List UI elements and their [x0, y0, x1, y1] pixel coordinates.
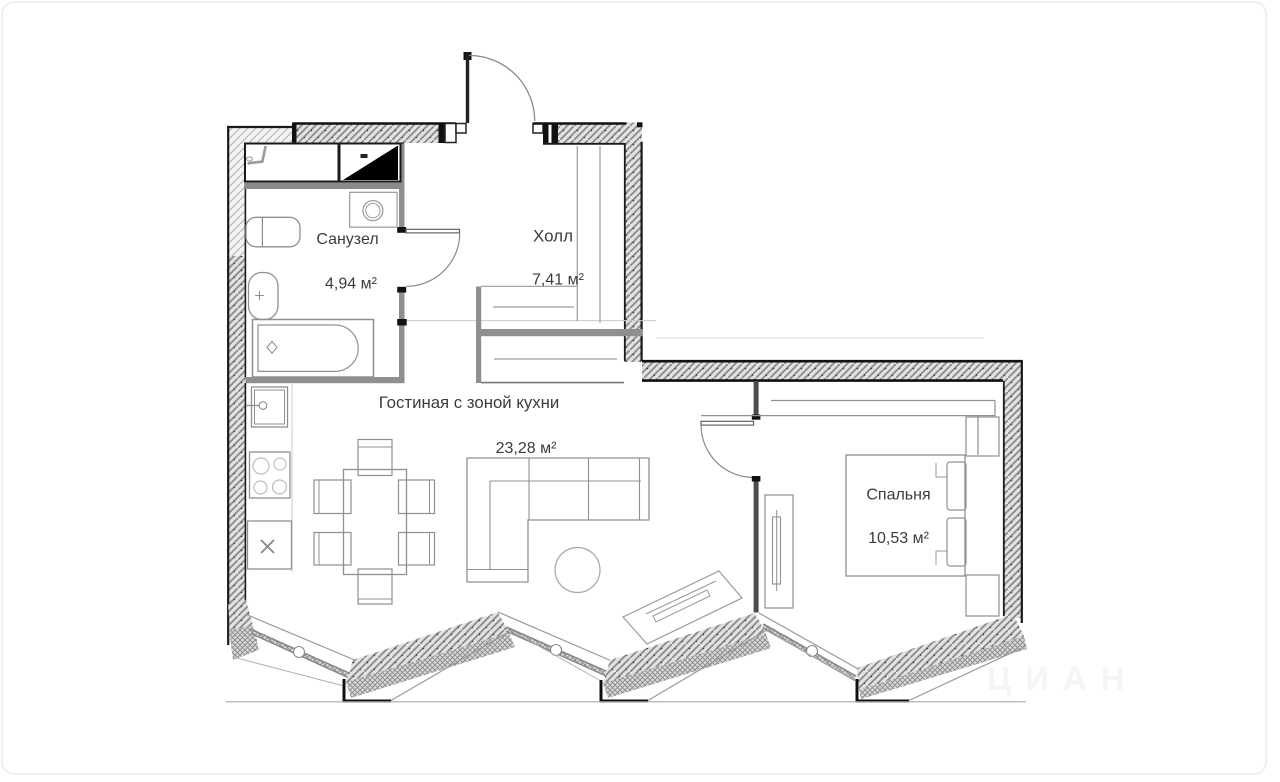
svg-text:Санузел: Санузел: [316, 231, 378, 248]
svg-text:23,28 м²: 23,28 м²: [496, 440, 557, 457]
svg-text:ЦИАН: ЦИАН: [987, 660, 1139, 697]
svg-text:10,53 м²: 10,53 м²: [868, 530, 929, 547]
svg-text:4,94 м²: 4,94 м²: [325, 276, 378, 293]
svg-text:Спальня: Спальня: [866, 487, 930, 504]
svg-text:Холл: Холл: [533, 227, 573, 246]
svg-text:7,41 м²: 7,41 м²: [532, 272, 585, 289]
svg-text:Гостиная с зоной кухни: Гостиная с зоной кухни: [379, 393, 560, 412]
